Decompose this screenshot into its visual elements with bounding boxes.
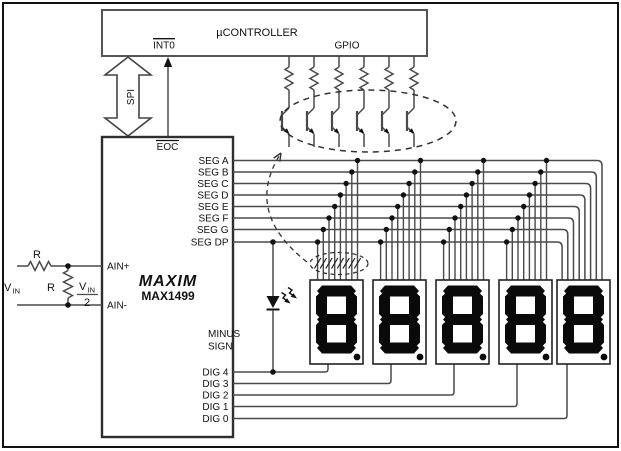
seg-pin-label: SEG B (198, 168, 229, 179)
series-resistor-label: R (33, 249, 41, 261)
junction-dot (544, 158, 549, 163)
display-7seg (557, 280, 610, 364)
adc-box: EOC MAXIM MAX1499 AIN+ AIN- SEG ASEG BSE… (102, 137, 233, 437)
microcontroller-box: µCONTROLLER INT0 GPIO (102, 10, 427, 56)
eoc-text: EOC (157, 142, 179, 153)
shunt-resistor-label: R (47, 282, 55, 294)
junction-dot (521, 204, 526, 209)
seven-segment-displays (310, 280, 610, 364)
seg-pin-label: SEG G (197, 225, 229, 236)
junction-dot (389, 215, 394, 220)
junction-dot (65, 302, 71, 308)
junction-dot (384, 227, 389, 232)
vin-label-base: V (4, 282, 12, 294)
seg-pin-label: SEG D (197, 191, 228, 202)
junction-dot (441, 239, 446, 244)
microcontroller-title: µCONTROLLER (216, 27, 298, 39)
display-7seg (310, 280, 363, 364)
display-7seg (436, 280, 489, 364)
junction-dot (532, 181, 537, 186)
maxim-logo: MAXIM (139, 273, 197, 290)
junction-dot (458, 204, 463, 209)
divider-num-base: V (79, 281, 87, 293)
junction-dot (538, 169, 543, 174)
junction-dot (355, 158, 360, 163)
junction-dot (326, 215, 331, 220)
schematic-page: µCONTROLLER INT0 GPIO SPI EOC MAXIM MAX1… (0, 0, 621, 451)
divider-num-sub: IN (88, 286, 96, 295)
junction-dot (401, 192, 406, 197)
junction-dot (481, 158, 486, 163)
dig-pin-label: DIG 2 (202, 391, 229, 402)
junction-dot (464, 192, 469, 197)
ain-minus-label: AIN- (107, 301, 127, 312)
dig-pin-label: DIG 0 (202, 414, 229, 425)
seg-pin-label: SEG C (197, 179, 228, 190)
junction-dot (412, 169, 417, 174)
seg-pin-label: SEG A (198, 156, 228, 167)
junction-dot (378, 239, 383, 244)
junction-dot (332, 204, 337, 209)
minus-label-line2: SIGN (208, 342, 232, 353)
vin-label-sub: IN (13, 287, 21, 296)
junction-dot (270, 369, 276, 375)
dig-pin-labels: DIG 4DIG 3DIG 2DIG 1DIG 0 (202, 368, 229, 426)
eoc-pin-label: EOC (156, 141, 179, 154)
junction-dot (349, 169, 354, 174)
junction-dot (527, 192, 532, 197)
minus-label-line1: MINUS (208, 329, 241, 340)
junction-dot (418, 158, 423, 163)
junction-dot (504, 239, 509, 244)
gpio-pin-label: GPIO (334, 41, 359, 52)
junction-dot (343, 181, 348, 186)
seg-pin-label: SEG E (198, 202, 229, 213)
junction-dot (65, 263, 71, 269)
dig-pin-label: DIG 1 (202, 402, 229, 413)
int0-text: INT0 (153, 41, 175, 52)
ain-plus-label: AIN+ (107, 262, 130, 273)
junction-dot (447, 227, 452, 232)
seg-pin-label: SEG DP (191, 238, 229, 249)
junction-dot (510, 227, 515, 232)
junction-dot (469, 181, 474, 186)
int0-pin-label: INT0 (153, 39, 175, 52)
display-7seg (499, 280, 552, 364)
junction-dot (315, 239, 320, 244)
dig-pin-label: DIG 3 (202, 379, 229, 390)
junction-dot (452, 215, 457, 220)
dig-pin-label: DIG 4 (202, 368, 229, 379)
divider-denominator: 2 (84, 297, 90, 309)
spi-label: SPI (126, 89, 137, 105)
junction-dot (515, 215, 520, 220)
junction-dot (475, 169, 480, 174)
junction-dot (270, 239, 276, 245)
junction-dot (406, 181, 411, 186)
junction-dot (338, 192, 343, 197)
seg-pin-label: SEG F (198, 214, 228, 225)
part-number: MAX1499 (141, 289, 195, 303)
junction-dot (395, 204, 400, 209)
junction-dot (321, 227, 326, 232)
display-7seg (373, 280, 426, 364)
